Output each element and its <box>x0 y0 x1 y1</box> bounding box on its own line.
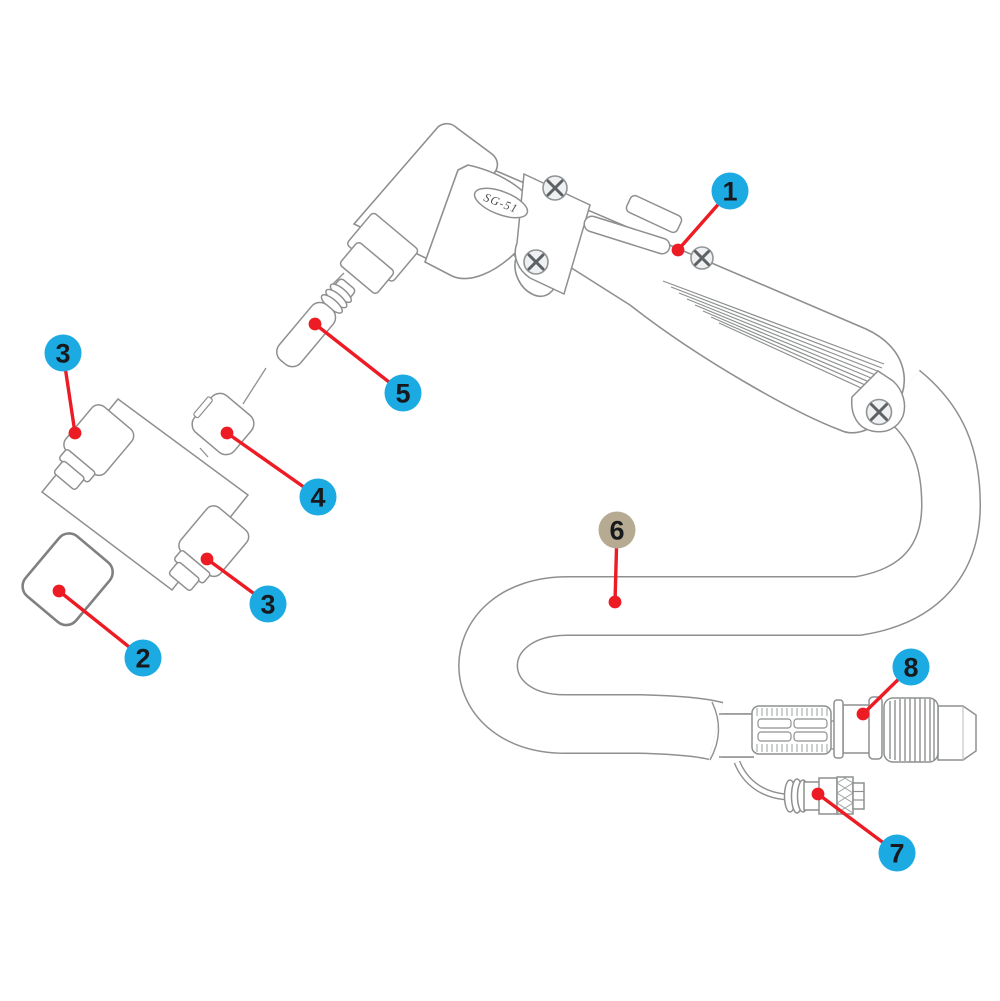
leader-dot <box>201 553 214 566</box>
callout-layer: 135432687 <box>0 0 1000 1001</box>
callout-number: 7 <box>889 839 904 869</box>
callout-number: 1 <box>722 177 737 207</box>
leader-dot <box>221 427 234 440</box>
leader-dot <box>53 585 66 598</box>
callout-number: 6 <box>609 516 624 546</box>
callout-3-4: 3 <box>201 553 287 623</box>
leader-dot <box>309 318 322 331</box>
callout-number: 3 <box>260 590 275 620</box>
callout-number: 3 <box>55 339 70 369</box>
callout-6-6: 6 <box>599 512 636 609</box>
leader-dot <box>672 244 685 257</box>
callout-5-2: 5 <box>309 318 422 412</box>
leader-dot <box>812 788 825 801</box>
callout-number: 2 <box>135 644 150 674</box>
callout-2-5: 2 <box>53 585 162 677</box>
callout-number: 4 <box>310 483 325 513</box>
callout-7-8: 7 <box>812 788 916 872</box>
leader-dot <box>69 427 82 440</box>
leader-dot <box>609 596 622 609</box>
callout-number: 5 <box>395 379 410 409</box>
leader-dot <box>857 708 870 721</box>
callout-1-0: 1 <box>672 173 749 257</box>
callout-number: 8 <box>903 653 918 683</box>
callout-3-1: 3 <box>45 335 82 440</box>
callout-4-3: 4 <box>221 427 337 516</box>
diagram-canvas: SG-51 13 <box>0 0 1000 1001</box>
callout-8-7: 8 <box>857 649 930 721</box>
